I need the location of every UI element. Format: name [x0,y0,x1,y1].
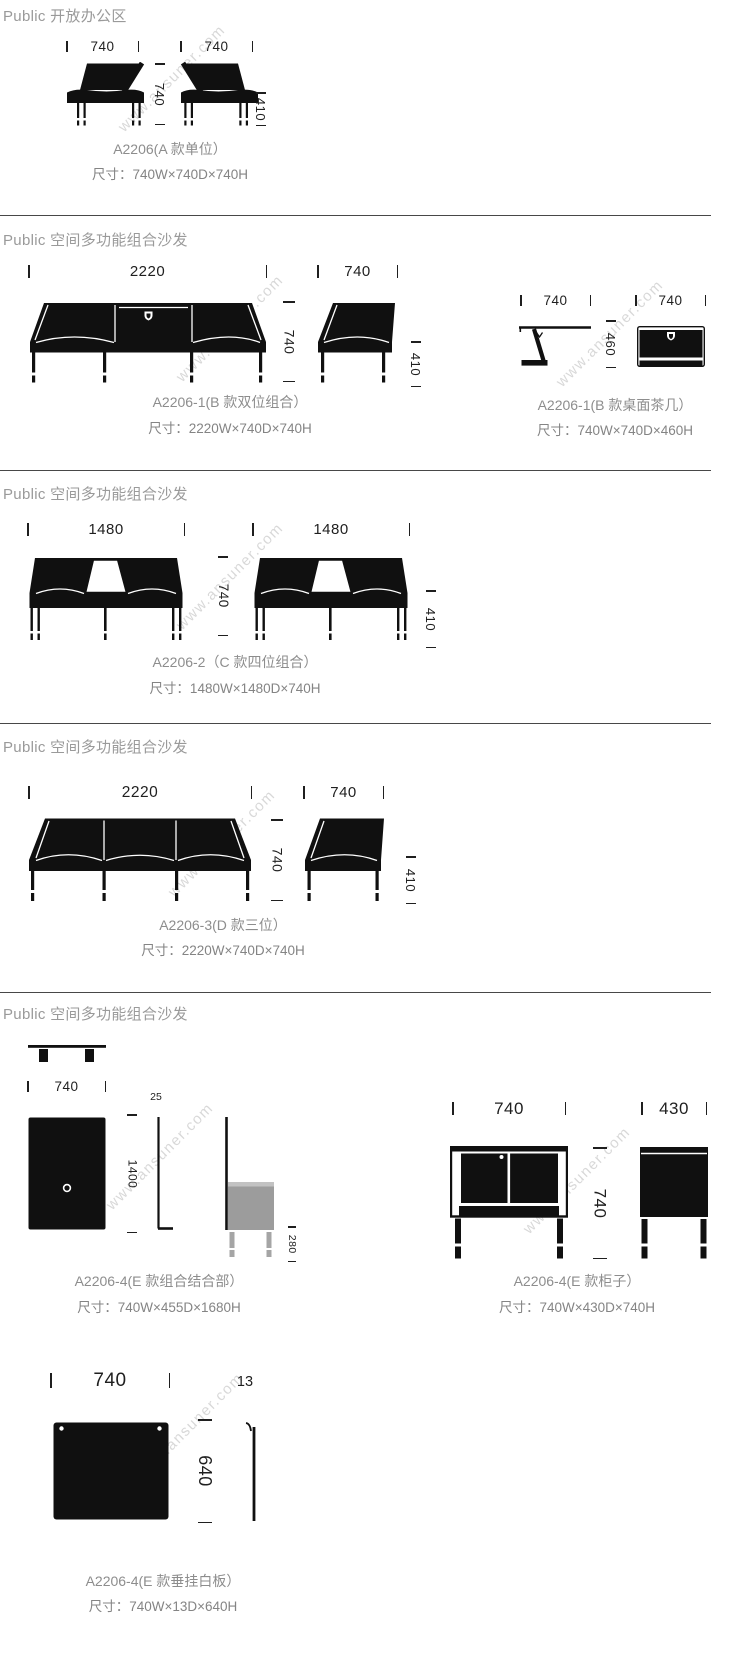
dim-tick [105,1081,107,1092]
sofa-four-seat-side-drawing [252,556,410,640]
dim-tick [706,1102,708,1116]
dim-depth: 740 [212,556,234,636]
dim-tick [198,1419,212,1421]
dim-side-width: 740 [303,785,384,800]
dim-tick [184,523,186,535]
dim-tick [411,341,421,343]
figure-size: 尺寸：740W×13D×640H [43,1595,283,1615]
dim-label: 740 [182,40,252,54]
dim-cabinet-width: 740 [452,1100,566,1117]
dim-tick [155,124,165,126]
dim-tick [271,819,282,821]
dim-seat-height: 410 [250,92,272,126]
dim-label: 410 [255,97,268,120]
dim-label: 740 [592,1188,609,1218]
dim-tick [565,1102,567,1116]
dim-label: 740 [29,1080,105,1094]
cabinet-front-drawing [450,1146,568,1260]
dim-tick [218,556,229,558]
dim-tick [406,856,416,858]
dim-sofa-width: 2220 [28,785,252,801]
dim-tick [155,63,165,65]
figure-name: A2206-4(E 款垂挂白板） [43,1571,283,1591]
dim-tick [218,635,229,637]
figure-name: A2206-1(B 款桌面茶几） [495,395,735,415]
table-side-drawing [519,325,593,369]
dim-tick [406,903,416,905]
dim-tick [127,1114,137,1116]
section-header: Public 空间多功能组合沙发 [3,736,188,757]
dim-cabinet-height: 740 [589,1147,611,1259]
dim-tick [409,523,411,535]
section-divider [0,470,711,471]
dim-label: 430 [643,1100,706,1117]
whiteboard-side-drawing [243,1421,259,1523]
pole-and-box-drawing [223,1117,279,1258]
dim-tick [252,41,254,52]
dim-cabinet-depth: 430 [641,1100,707,1117]
figure-size: 尺寸：2220W×740D×740H [110,417,350,437]
dim-label: 740 [305,785,383,800]
dim-label: 740 [216,584,230,608]
cabinet-side-drawing [639,1146,709,1260]
dim-label: 410 [405,868,418,891]
dim-box-height: 280 [281,1226,303,1262]
dim-seat-height: 410 [405,341,427,387]
dim-tick [288,1226,296,1228]
dim-tick [127,1232,137,1234]
chair-side-drawing [179,62,261,126]
dim-tick [169,1373,171,1389]
dim-label: 740 [282,329,296,354]
dim-table-width2: 740 [635,294,706,308]
dim-label: 2220 [30,264,266,279]
sofa-four-seat-front-drawing [27,556,185,640]
dim-label: 740 [52,1371,169,1390]
dim-seat-height: 410 [400,856,422,904]
dim-label: 280 [287,1234,298,1253]
section-header: Public 开放办公区 [3,5,127,26]
panel-front-drawing [28,1117,106,1230]
sofa-two-seat-drawing [28,301,268,383]
dim-label: 410 [425,607,438,630]
dim-side-width: 740 [317,264,398,279]
dim-board-width: 740 [50,1371,170,1390]
dim-tick [271,900,282,902]
dim-tick [138,41,140,52]
dim-tick [198,1522,212,1524]
dim-width-b: 1480 [252,522,410,537]
dim-thickness-label: 25 [144,1092,168,1103]
dim-width-front: 740 [66,40,139,54]
dim-tick [606,367,616,369]
dim-tick [426,647,436,649]
dim-tick [426,590,436,592]
figure-name: A2206-2（C 款四位组合） [115,652,355,672]
dim-tick [256,125,266,127]
sofa-side-drawing [303,816,387,902]
sofa-three-seat-drawing [27,816,253,902]
dim-sofa-depth: 740 [278,301,300,382]
figure-size: 尺寸：2220W×740D×740H [103,939,343,959]
dim-width-a: 1480 [27,522,185,537]
dim-label: 460 [605,332,618,355]
whiteboard-front-drawing [53,1422,169,1520]
dim-label: 740 [68,40,138,54]
dim-tick [705,295,707,306]
figure-name: A2206-1(B 款双位组合） [110,392,350,412]
dim-tick [283,301,294,303]
figure-name: A2206(A 款单位） [50,139,290,159]
dim-panel-width: 740 [27,1080,106,1094]
section-divider [0,215,711,216]
figure-name: A2206-3(D 款三位） [103,915,343,935]
dim-tick [256,92,266,94]
figure-size: 尺寸：1480W×1480D×740H [115,677,355,697]
dim-tick [283,381,294,383]
figure-size: 尺寸：740W×455D×1680H [39,1296,279,1316]
dim-tick [266,265,268,277]
dim-depth: 740 [149,63,171,125]
figure-size: 尺寸：740W×740D×740H [50,163,290,183]
dim-tick [288,1261,296,1263]
dim-label: 740 [454,1100,565,1117]
dim-tick [411,386,421,388]
table-top-drawing [637,326,705,367]
dim-panel-height: 1400 [121,1114,143,1233]
dim-width-side: 740 [180,40,253,54]
dim-tick [251,786,253,799]
dim-label: 410 [410,352,423,375]
dim-tick [590,295,592,306]
section-header: Public 空间多功能组合沙发 [3,1003,188,1024]
dim-table-width: 740 [520,294,591,308]
dim-label: 2220 [30,785,251,801]
figure-name: A2206-4(E 款组合结合部） [39,1271,279,1291]
dim-tick [397,265,399,277]
dim-label: 740 [154,82,167,105]
dim-sofa-width: 2220 [28,264,267,279]
section-divider [0,992,711,993]
dim-board-height: 640 [194,1419,216,1523]
figure-size: 尺寸：740W×430D×740H [457,1296,697,1316]
panel-side-drawing [153,1117,174,1231]
dim-board-thickness-label: 13 [230,1375,260,1390]
section-header: Public 空间多功能组合沙发 [3,483,188,504]
dim-label: 740 [522,294,590,308]
furniture-spec-sheet: www.ansuner.com www.ansuner.com www.ansu… [0,0,750,1658]
dim-sofa-depth: 740 [266,819,288,901]
sofa-side-drawing [316,301,398,383]
figure-size: 尺寸：740W×740D×460H [495,419,735,439]
dim-label: 1400 [126,1159,138,1188]
dim-label: 740 [319,264,397,279]
dim-table-height: 460 [600,320,622,368]
dim-tick [593,1147,607,1149]
dim-tick [383,786,385,798]
dim-label: 1480 [254,522,409,537]
dim-label: 740 [270,848,284,873]
dim-tick [606,320,616,322]
dim-label: 1480 [29,522,184,537]
chair-front-drawing [64,62,146,126]
section-header: Public 空间多功能组合沙发 [3,229,188,250]
section-divider [0,723,711,724]
table-top-view-drawing [28,1044,106,1063]
dim-tick [593,1258,607,1260]
dim-label: 740 [637,294,705,308]
dim-seat-height: 410 [420,590,442,648]
figure-name: A2206-4(E 款柜子） [457,1271,697,1291]
dim-label: 640 [196,1455,214,1487]
